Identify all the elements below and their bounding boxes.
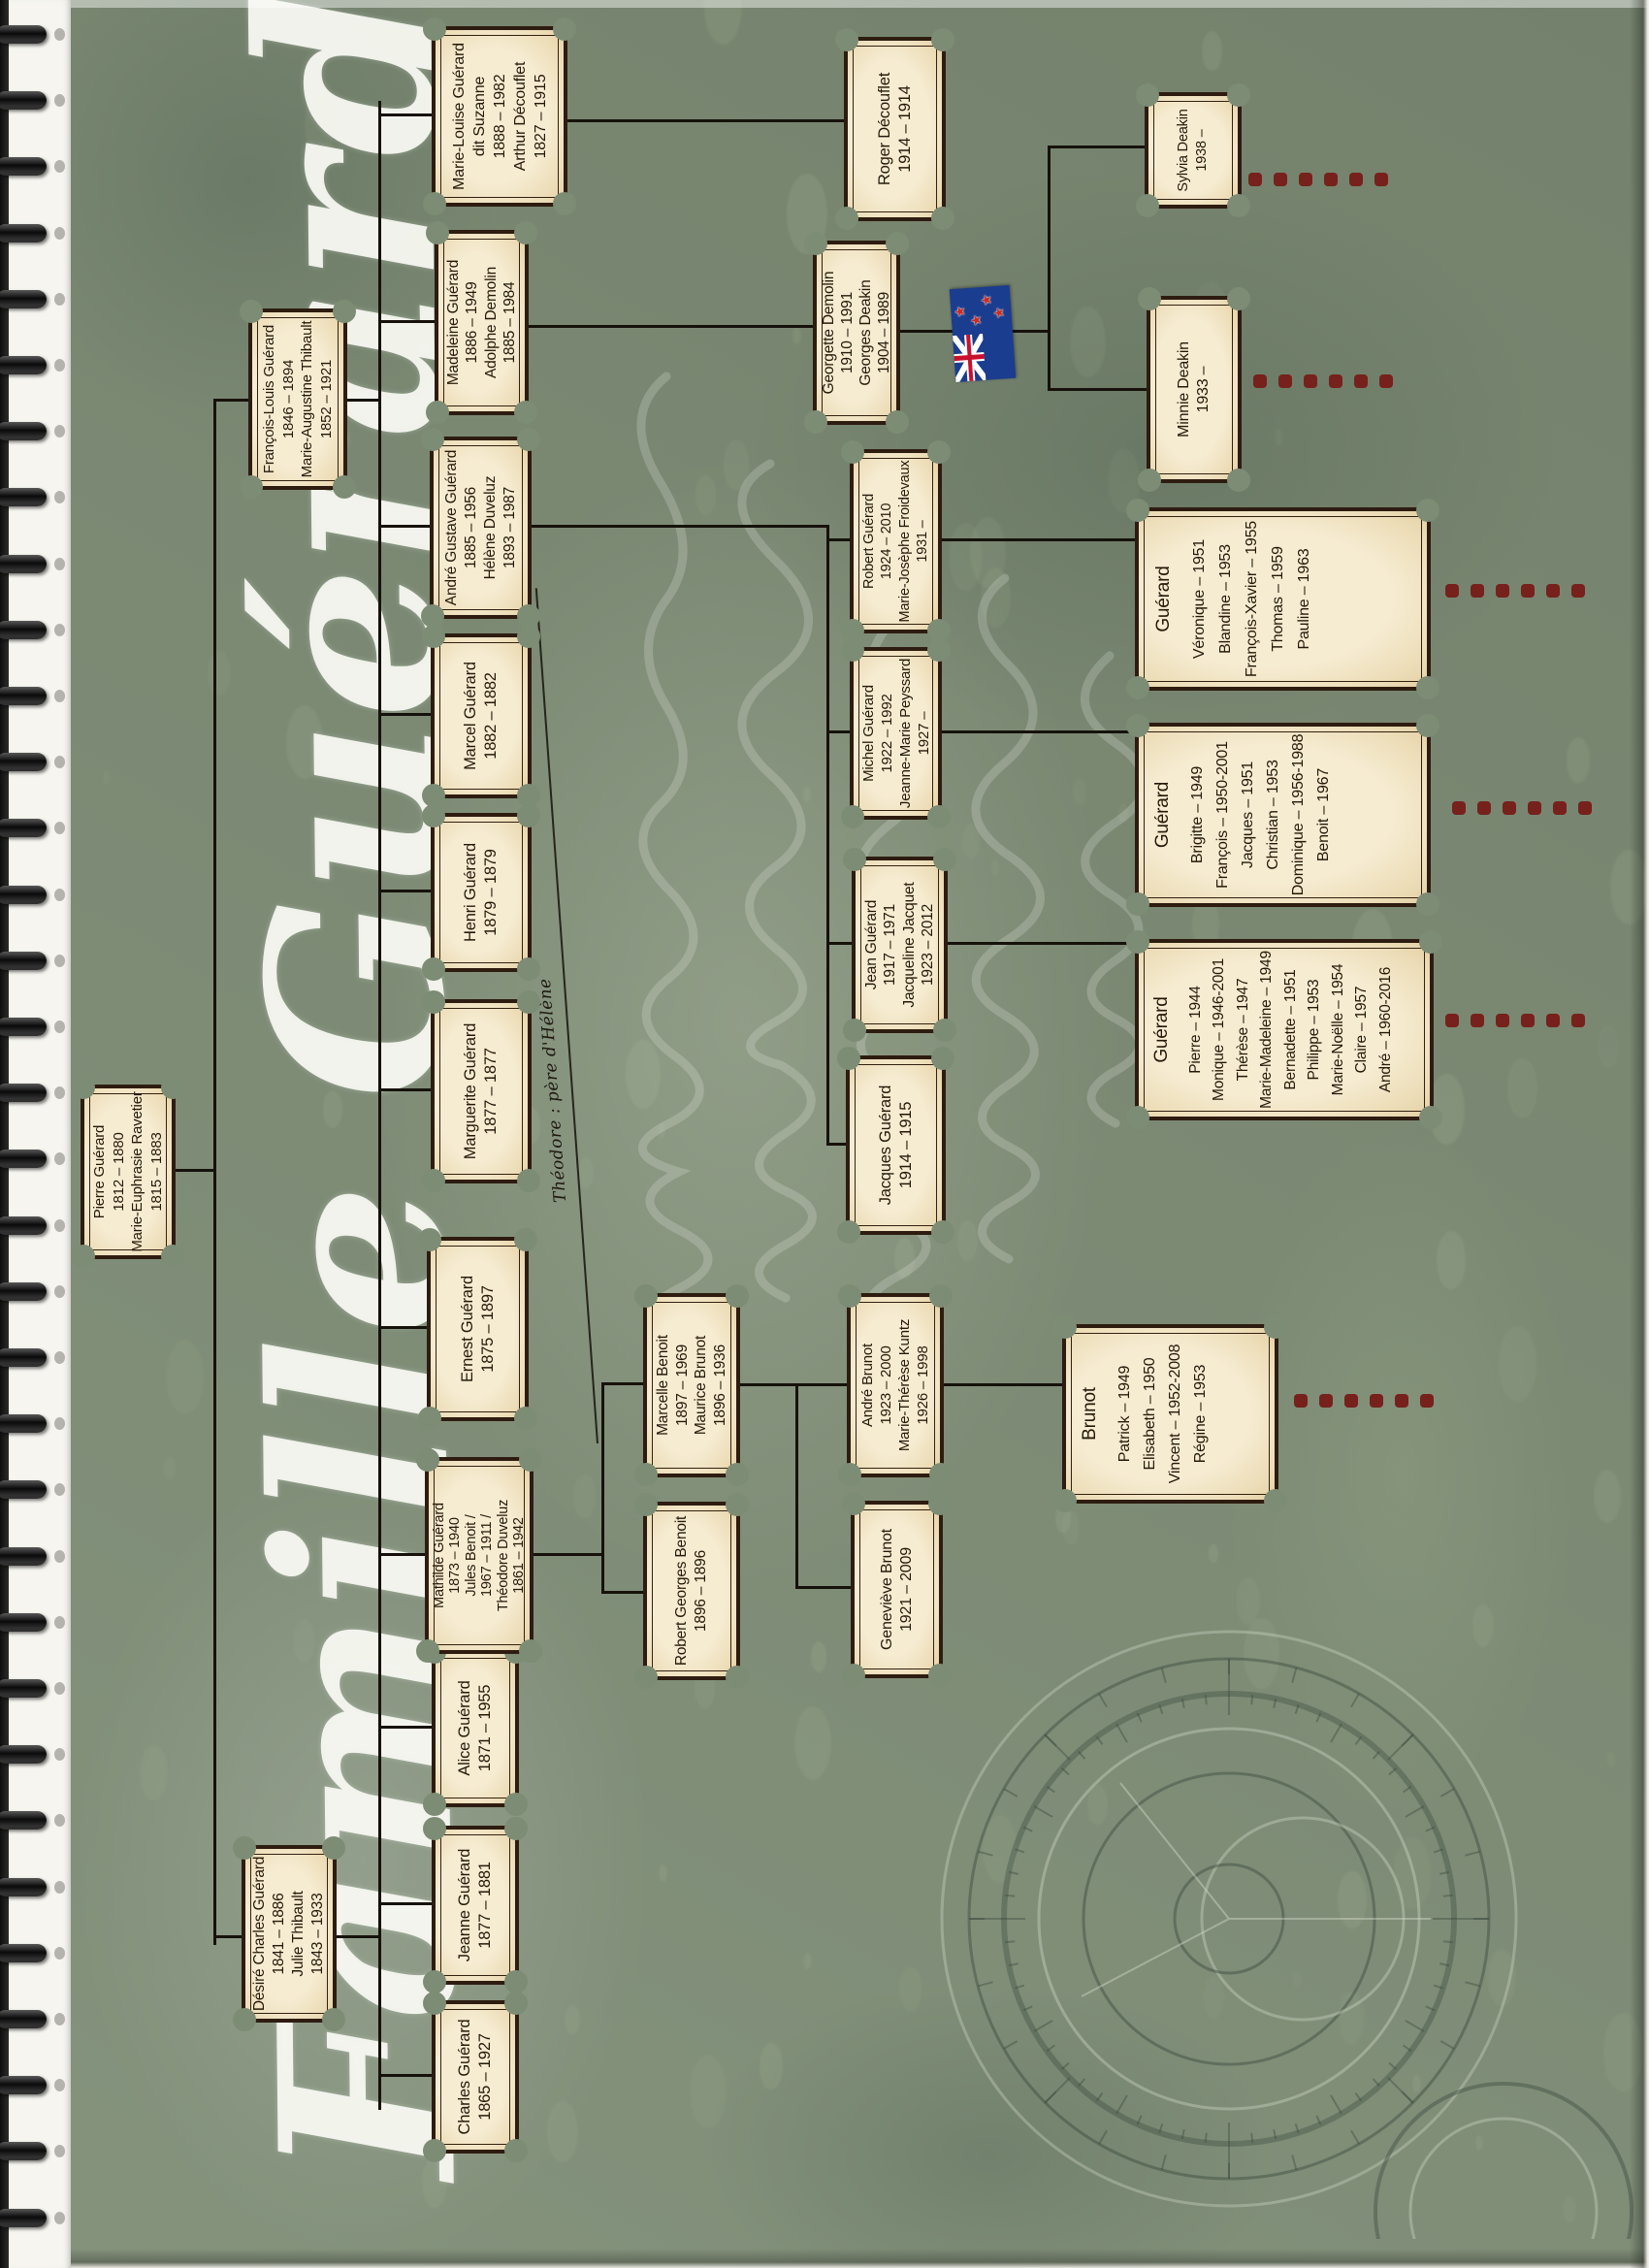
person-box-francois: François-Louis Guérard1846 – 1894Marie-A… [248, 308, 347, 490]
box-corner-notch [843, 848, 866, 871]
box-corner-notch [886, 410, 909, 434]
binding-hole [54, 1550, 65, 1563]
tree-connector-line [378, 113, 434, 116]
box-corner-notch [426, 221, 449, 244]
person-box-jacques: Jacques Guérard1914 – 1915 [846, 1055, 946, 1235]
box-corner-notch [161, 1076, 184, 1099]
person-detail: Maurice Brunot [692, 1336, 711, 1435]
tree-connector-line [378, 101, 381, 2110]
box-corner-notch [841, 638, 864, 662]
child-entry: Elisabeth – 1950 [1138, 1358, 1163, 1471]
descendants-continue-dot [1304, 374, 1317, 388]
box-corner-notch [418, 1228, 441, 1251]
box-corner-notch [418, 1407, 441, 1430]
tree-connector-line [378, 1553, 427, 1556]
child-entry: Claire – 1957 [1350, 987, 1374, 1074]
person-name: Pierre Guérard [90, 1125, 110, 1218]
tree-connector-line [826, 942, 854, 945]
spiral-coil [0, 1414, 47, 1433]
person-detail: 1967 – 1911 / [479, 1514, 496, 1597]
descendants-continue-dot [1379, 374, 1393, 388]
person-detail: Jacqueline Jacquet [900, 882, 920, 1007]
child-entry: Benoit – 1967 [1311, 768, 1337, 861]
binding-hole [54, 2013, 65, 2025]
person-box-michel: Michel Guérard1922 – 1992Jeanne-Marie Pe… [850, 647, 942, 820]
child-entry: Brigitte – 1949 [1185, 766, 1211, 863]
spiral-coil [0, 2142, 47, 2160]
box-corner-notch [161, 1245, 184, 1268]
box-corner-notch [726, 1463, 749, 1486]
box-corner-notch [1416, 714, 1439, 737]
person-detail: dit Suzanne [469, 77, 490, 156]
person-name: Georgette Demolin [820, 272, 838, 395]
box-corner-notch [1227, 83, 1250, 107]
spiral-coil [0, 753, 47, 771]
southern-cross-star: ★ [991, 307, 1006, 320]
box-corner-notch [422, 784, 445, 807]
box-corner-notch [1227, 194, 1250, 217]
spiral-coil [0, 1547, 47, 1566]
binding-hole [54, 293, 65, 306]
box-corner-notch [519, 1448, 542, 1472]
tree-connector-line [378, 2074, 434, 2077]
descendants-continue-dot [1546, 1014, 1560, 1027]
box-corner-notch [240, 475, 263, 499]
person-detail: 1865 – 1927 [475, 2033, 496, 2121]
descendants-continue-dot [1420, 1394, 1434, 1408]
person-detail: 1927 – [915, 712, 933, 756]
person-name: Robert Guérard [860, 494, 879, 589]
tree-connector-line [378, 1902, 434, 1905]
spiral-coil [0, 1613, 47, 1632]
spiral-coil [0, 621, 47, 639]
box-corner-notch [837, 1047, 860, 1070]
box-corner-notch [333, 475, 356, 499]
tree-connector-line [601, 1591, 645, 1594]
person-detail: 1871 – 1955 [475, 1685, 496, 1772]
box-corner-notch [835, 28, 858, 51]
box-corner-notch [931, 1220, 954, 1244]
box-corner-notch [1419, 1106, 1442, 1129]
binding-hole [54, 28, 65, 41]
scanner-dark-edge [0, 0, 9, 2268]
person-box-roger: Roger Découflet1914 – 1914 [844, 37, 946, 221]
person-box-georgette: Georgette Demolin1910 – 1991Georges Deak… [813, 241, 900, 425]
descendants-continue-dot [1294, 1394, 1308, 1408]
descendants-continue-dot [1477, 801, 1491, 815]
child-entry: Patrick – 1949 [1113, 1366, 1138, 1462]
box-corner-notch [842, 1664, 865, 1687]
person-detail: Marie-Thérèse Kuntz [895, 1319, 914, 1451]
box-corner-notch [517, 1169, 540, 1192]
person-detail: Georges Deakin [857, 279, 875, 385]
southern-cross-star: ★ [969, 313, 984, 327]
descendants-continue-dot [1278, 374, 1292, 388]
tree-connector-line [378, 1726, 434, 1729]
binding-hole [54, 1881, 65, 1894]
descendants-continue-dot [1471, 584, 1484, 598]
spiral-coil [0, 1018, 47, 1036]
person-detail: Adolphe Demolin [482, 267, 501, 378]
tree-connector-line [347, 399, 380, 402]
person-detail: 1904 – 1989 [875, 292, 893, 373]
spiral-coil [0, 1745, 47, 1764]
person-detail: 1852 – 1921 [317, 360, 337, 438]
person-detail: 1846 – 1894 [279, 360, 299, 438]
tree-connector-line [532, 525, 829, 528]
box-corner-notch [517, 428, 540, 451]
person-box-robertg: Robert Guérard1924 – 2010Marie-Josèphe F… [850, 449, 942, 633]
family-surname: Guérard [1150, 996, 1175, 1062]
box-corner-notch [1136, 194, 1159, 217]
person-name: Sylvia Deakin [1175, 109, 1193, 191]
person-name: Roger Découflet [875, 73, 895, 185]
descendants-continue-dot [1546, 584, 1560, 598]
descendants-continue-dot [1253, 374, 1267, 388]
binding-hole [54, 955, 65, 967]
box-corner-notch [517, 990, 540, 1014]
child-entry: Pierre – 1944 [1184, 986, 1209, 1073]
person-detail: Arthur Découflet [510, 62, 531, 171]
person-name: Marguerite Guérard [461, 1023, 481, 1159]
child-entry: Jacques – 1951 [1236, 761, 1261, 868]
descendants-continue-dot [1374, 173, 1388, 186]
person-detail: 1921 – 2009 [897, 1547, 917, 1632]
family-group-box-kids3: GuérardPierre – 1944Monique – 1946-2001T… [1135, 939, 1434, 1120]
box-corner-notch [423, 1793, 446, 1816]
spiral-coil [0, 224, 47, 243]
southern-cross-star: ★ [979, 294, 993, 308]
person-box-jeanne: Jeanne Guérard1877 – 1881 [432, 1826, 519, 1985]
family-surname: Guérard [1150, 782, 1176, 848]
child-entry: François-Xavier – 1955 [1239, 521, 1265, 677]
child-entry: Philippe – 1953 [1303, 980, 1327, 1081]
child-entry: François – 1950-2001 [1211, 741, 1236, 889]
box-corner-notch [72, 1245, 95, 1268]
family-surname: Guérard [1150, 566, 1177, 632]
box-corner-notch [504, 1992, 528, 2015]
person-detail: 1877 – 1881 [475, 1862, 496, 1949]
binding-hole [54, 1682, 65, 1695]
box-corner-notch [504, 1817, 528, 1840]
page-bottom-edge-shadow [0, 2249, 1649, 2268]
tree-connector-line [826, 525, 829, 1146]
box-corner-notch [838, 1463, 861, 1486]
tree-connector-line [740, 1383, 849, 1386]
box-corner-notch [426, 401, 449, 424]
box-corner-notch [504, 1793, 528, 1816]
person-detail: 1886 – 1949 [463, 282, 482, 364]
box-corner-notch [842, 1492, 865, 1515]
page-right-edge-shadow [1630, 0, 1649, 2268]
person-box-desire: Désiré Charles Guérard1841 – 1886Julie T… [242, 1845, 337, 2023]
family-surname: Brunot [1078, 1387, 1103, 1441]
person-detail: 1917 – 1971 [881, 904, 900, 986]
union-jack-canton [953, 334, 986, 382]
binding-hole [54, 624, 65, 636]
box-corner-notch [726, 1493, 749, 1516]
tree-connector-line [378, 320, 436, 323]
tree-connector-line [826, 538, 852, 541]
binding-hole [54, 227, 65, 240]
tree-connector-line [942, 730, 1137, 733]
box-corner-notch [423, 1970, 446, 1993]
child-entry: Dominique – 1956-1988 [1286, 734, 1311, 896]
binding-hole [54, 2212, 65, 2224]
spiral-coil [0, 356, 47, 374]
person-detail: Marie-Augustine Thibault [298, 321, 317, 478]
box-corner-notch [421, 604, 444, 628]
person-name: Jeanne Guérard [455, 1849, 475, 1961]
box-corner-notch [422, 804, 445, 827]
box-corner-notch [333, 300, 356, 323]
tree-connector-line [176, 1169, 213, 1172]
box-corner-notch [726, 1666, 749, 1689]
person-name: Michel Guérard [859, 685, 878, 782]
descendants-continue-dot [1521, 1014, 1535, 1027]
binding-hole [54, 1351, 65, 1364]
box-corner-notch [422, 990, 445, 1014]
box-corner-notch [841, 805, 864, 828]
box-corner-notch [929, 1284, 953, 1308]
person-detail: 1888 – 1982 [490, 75, 510, 159]
person-detail: 1893 – 1987 [501, 487, 520, 568]
box-corner-notch [553, 17, 576, 41]
spiral-coil [0, 1216, 47, 1235]
person-detail: 1815 – 1883 [147, 1132, 167, 1211]
descendants-continue-dot [1445, 584, 1459, 598]
person-detail: 1843 – 1933 [308, 1894, 328, 1975]
descendants-continue-dot [1248, 173, 1262, 186]
box-corner-notch [837, 1220, 860, 1244]
box-corner-notch [423, 2139, 446, 2162]
spiral-coil [0, 886, 47, 904]
box-corner-notch [1138, 287, 1161, 310]
binding-hole [54, 690, 65, 702]
box-corner-notch [423, 1817, 446, 1840]
box-corner-notch [931, 28, 954, 51]
person-name: Marcel Guérard [461, 662, 481, 770]
person-name: Geneviève Brunot [878, 1529, 897, 1650]
person-box-ernest: Ernest Guérard1875 – 1897 [427, 1237, 529, 1421]
spiral-coil [0, 1150, 47, 1168]
spiral-coil [0, 687, 47, 705]
person-box-madeleine: Madeleine Guérard1886 – 1949Adolphe Demo… [435, 230, 529, 415]
box-corner-notch [634, 1463, 658, 1486]
tree-connector-line [378, 1326, 429, 1329]
spiral-coil [0, 1282, 47, 1301]
person-detail: 1896 – 1936 [711, 1345, 730, 1426]
box-corner-notch [514, 1407, 537, 1430]
descendants-continue-dot [1319, 1394, 1333, 1408]
person-detail: 1926 – 1998 [914, 1345, 932, 1424]
box-corner-notch [553, 192, 576, 215]
descendants-continue-dot [1324, 173, 1338, 186]
child-entry: Régine – 1953 [1188, 1365, 1213, 1464]
southern-cross-star: ★ [953, 306, 967, 319]
box-corner-notch [634, 1666, 658, 1689]
person-box-mathilde: Mathilde Guérard1873 – 1940Jules Benoit … [425, 1457, 533, 1654]
tree-connector-line [1048, 388, 1148, 391]
descendants-continue-dot [1445, 1014, 1459, 1027]
spiral-coil [0, 1878, 47, 1896]
box-corner-notch [517, 804, 540, 827]
child-entry: Marie-Noëlle – 1954 [1327, 964, 1351, 1096]
descendants-continue-dot [1452, 801, 1466, 815]
person-detail: 1841 – 1886 [270, 1894, 289, 1975]
person-detail: 1923 – 2012 [919, 904, 938, 986]
person-detail: 1879 – 1879 [481, 849, 501, 936]
child-entry: Véronique – 1951 [1186, 539, 1212, 659]
person-box-pierre: Pierre Guérard1812 – 1880Marie-Euphrasie… [81, 1085, 176, 1259]
page-top-edge [0, 0, 1649, 8]
descendants-continue-dot [1299, 173, 1312, 186]
box-corner-notch [804, 410, 827, 434]
child-entry: Monique – 1946-2001 [1208, 958, 1232, 1101]
binding-hole [54, 558, 65, 570]
box-corner-notch [1126, 892, 1149, 916]
box-corner-notch [1126, 714, 1149, 737]
box-corner-notch [928, 1664, 952, 1687]
spiral-coil [0, 1084, 47, 1102]
box-corner-notch [929, 1463, 953, 1486]
binding-hole [54, 359, 65, 372]
spiral-coil [0, 2010, 47, 2028]
spiral-coil [0, 819, 47, 837]
descendants-continue-dot [1344, 1394, 1358, 1408]
person-detail: 1897 – 1969 [673, 1345, 693, 1426]
descendants-continue-dot [1578, 801, 1592, 815]
person-box-marcel: Marcel Guérard1882 – 1882 [431, 633, 532, 798]
box-corner-notch [835, 207, 858, 230]
person-detail: 1914 – 1915 [896, 1102, 917, 1189]
box-corner-notch [838, 1284, 861, 1308]
box-corner-notch [422, 1169, 445, 1192]
box-corner-notch [233, 1836, 256, 1860]
spiral-coil [0, 91, 47, 110]
box-corner-notch [931, 1047, 954, 1070]
person-detail: 1922 – 1992 [878, 694, 896, 772]
child-entry: Bernadette – 1951 [1279, 969, 1304, 1089]
box-corner-notch [886, 232, 909, 255]
child-entry: Vincent – 1952-2008 [1163, 1345, 1188, 1484]
box-corner-notch [933, 848, 956, 871]
box-corner-notch [841, 440, 864, 464]
family-group-box-brunot: BrunotPatrick – 1949Elisabeth – 1950Vinc… [1062, 1324, 1278, 1504]
tree-connector-line [795, 1586, 853, 1589]
box-corner-notch [422, 957, 445, 981]
descendants-continue-dot [1274, 173, 1287, 186]
child-entry: Christian – 1953 [1261, 760, 1286, 869]
tree-connector-line [213, 1935, 243, 1938]
binding-hole [54, 1616, 65, 1629]
box-corner-notch [927, 805, 951, 828]
person-detail: Marie-Josèphe Froidevaux [896, 461, 915, 623]
person-detail: Jules Benoit / [464, 1514, 480, 1596]
box-corner-notch [726, 1284, 749, 1308]
tree-connector-line [795, 1383, 798, 1589]
tree-connector-line [529, 325, 815, 328]
person-detail: Julie Thibault [289, 1891, 308, 1976]
spiral-coil [0, 555, 47, 573]
box-corner-notch [1126, 1106, 1149, 1129]
box-corner-notch [517, 625, 540, 648]
person-detail: Jeanne-Marie Peyssard [896, 659, 915, 808]
box-corner-notch [1416, 499, 1439, 522]
box-corner-notch [514, 1228, 537, 1251]
spiral-coil [0, 2076, 47, 2094]
person-detail: 1885 – 1956 [462, 487, 481, 568]
descendants-continue-dot [1471, 1014, 1484, 1027]
person-name: Alice Guérard [455, 1680, 475, 1775]
box-corner-notch [423, 1992, 446, 2015]
descendants-continue-dot [1349, 173, 1363, 186]
tree-connector-line [378, 1088, 433, 1091]
person-detail: 1875 – 1897 [478, 1285, 499, 1373]
person-detail: Hélène Duveluz [481, 476, 501, 580]
box-corner-notch [504, 2139, 528, 2162]
descendants-continue-dot [1571, 1014, 1585, 1027]
tree-connector-line [533, 1553, 603, 1556]
family-group-box-kids1: GuérardVéronique – 1951Blandine – 1953Fr… [1135, 507, 1431, 691]
box-corner-notch [1416, 676, 1439, 699]
descendants-continue-dot [1370, 1394, 1383, 1408]
tree-connector-line [1048, 146, 1051, 391]
person-detail: Théodore Duveluz [496, 1500, 512, 1611]
family-group-box-kids2: GuérardBrigitte – 1949François – 1950-20… [1135, 723, 1431, 907]
spiral-coil [0, 488, 47, 506]
person-detail: 1882 – 1882 [481, 672, 501, 760]
spiral-coil [0, 422, 47, 440]
person-name: Marcelle Benoit [654, 1335, 673, 1436]
box-corner-notch [517, 957, 540, 981]
box-corner-notch [322, 2008, 345, 2031]
box-corner-notch [72, 1076, 95, 1099]
box-corner-notch [514, 221, 537, 244]
box-corner-notch [1419, 930, 1442, 954]
box-corner-notch [416, 1639, 439, 1663]
box-corner-notch [322, 1836, 345, 1860]
tree-connector-line [826, 730, 852, 733]
box-corner-notch [1227, 469, 1250, 492]
person-name: Robert Georges Benoit [672, 1516, 692, 1666]
person-detail: Marie-Euphrasie Ravetier [128, 1091, 147, 1251]
person-box-robertb: Robert Georges Benoit1896 – 1896 [643, 1502, 740, 1680]
spiral-coil [0, 1480, 47, 1499]
child-entry: Pauline – 1963 [1291, 549, 1317, 650]
box-corner-notch [634, 1284, 658, 1308]
person-box-marguerite: Marguerite Guérard1877 – 1877 [431, 999, 532, 1183]
child-entry: Thérèse – 1947 [1232, 979, 1256, 1082]
person-box-minnie: Minnie Deakin1933 – [1147, 296, 1242, 483]
person-name: Mathilde Guérard [432, 1503, 448, 1608]
person-detail: 1812 – 1880 [110, 1132, 129, 1211]
person-box-alice: Alice Guérard1871 – 1955 [432, 1649, 519, 1807]
person-detail: 1923 – 2000 [877, 1345, 895, 1424]
person-detail: 1873 – 1940 [447, 1517, 464, 1593]
box-corner-notch [928, 1492, 952, 1515]
tree-connector-line [213, 400, 216, 1945]
box-corner-notch [1053, 1489, 1077, 1512]
spiral-coil [0, 1679, 47, 1698]
person-box-charles: Charles Guérard1865 – 1927 [432, 2000, 519, 2154]
box-corner-notch [1264, 1489, 1287, 1512]
person-name: Minnie Deakin [1175, 341, 1194, 437]
person-name: André Gustave Guérard [442, 450, 462, 605]
box-corner-notch [933, 1019, 956, 1042]
person-box-andreb: André Brunot1923 – 2000Marie-Thérèse Kun… [847, 1293, 944, 1477]
tree-connector-line [378, 713, 433, 716]
